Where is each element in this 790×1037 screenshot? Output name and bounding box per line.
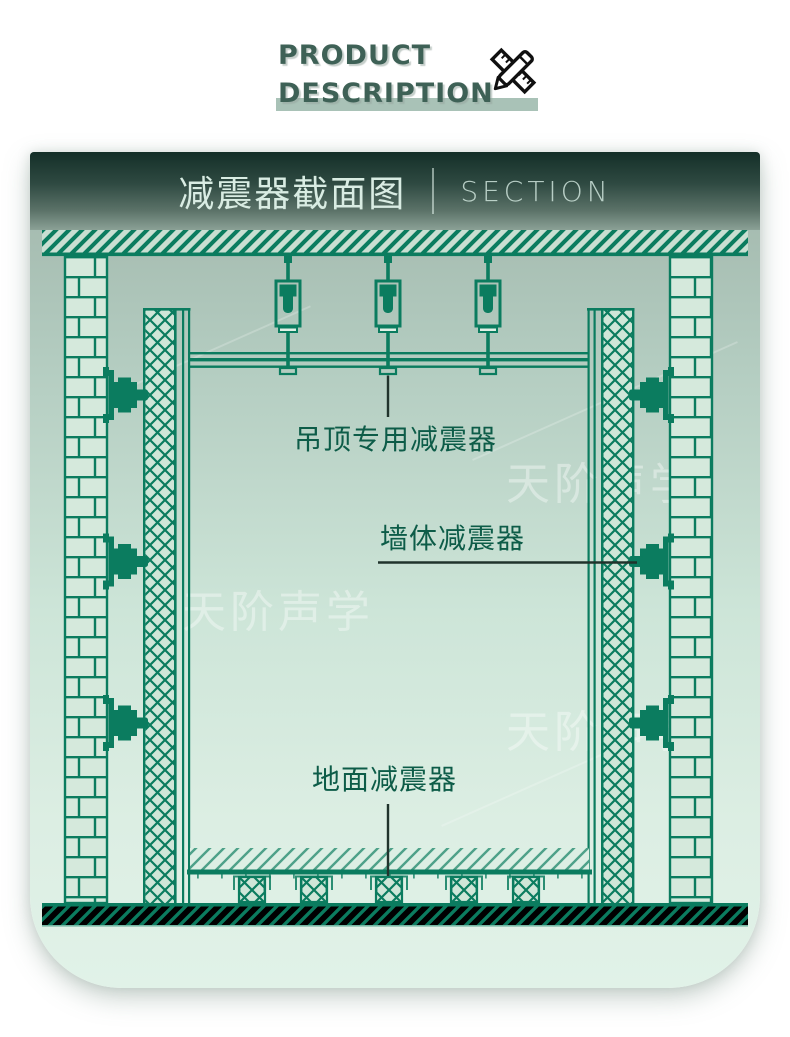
section-banner: 减震器截面图 SECTION: [30, 152, 760, 230]
right-brick-wall: [670, 256, 712, 903]
ground-slab: [42, 903, 748, 927]
pencil-ruler-icon: [484, 38, 542, 98]
section-diagram: [30, 230, 760, 988]
label-ceiling-damper: 吊顶专用减震器: [294, 418, 497, 458]
page-header: PRODUCT DESCRIPTION: [0, 0, 790, 152]
banner-title-en: SECTION: [460, 175, 611, 208]
banner-divider-line: [432, 168, 434, 214]
banner-title-cn: 减震器截面图: [178, 165, 406, 217]
product-card: 减震器截面图 SECTION 天阶声学 天阶声学 天阶声学: [30, 152, 760, 988]
ceiling-slab: [42, 230, 748, 256]
product-title-line2: DESCRIPTION: [278, 78, 494, 109]
right-insulation-panel: [587, 308, 635, 903]
label-floor-damper: 地面减震器: [312, 758, 457, 798]
product-title-line1: PRODUCT: [278, 40, 431, 71]
ceiling-hangers: [276, 256, 500, 374]
ceiling-rails: [190, 352, 589, 368]
floating-floor: [187, 848, 592, 879]
left-insulation-panel: [143, 308, 191, 903]
label-wall-damper: 墙体减震器: [380, 517, 525, 557]
floor-dampers: [234, 877, 544, 903]
left-brick-wall: [65, 256, 107, 903]
